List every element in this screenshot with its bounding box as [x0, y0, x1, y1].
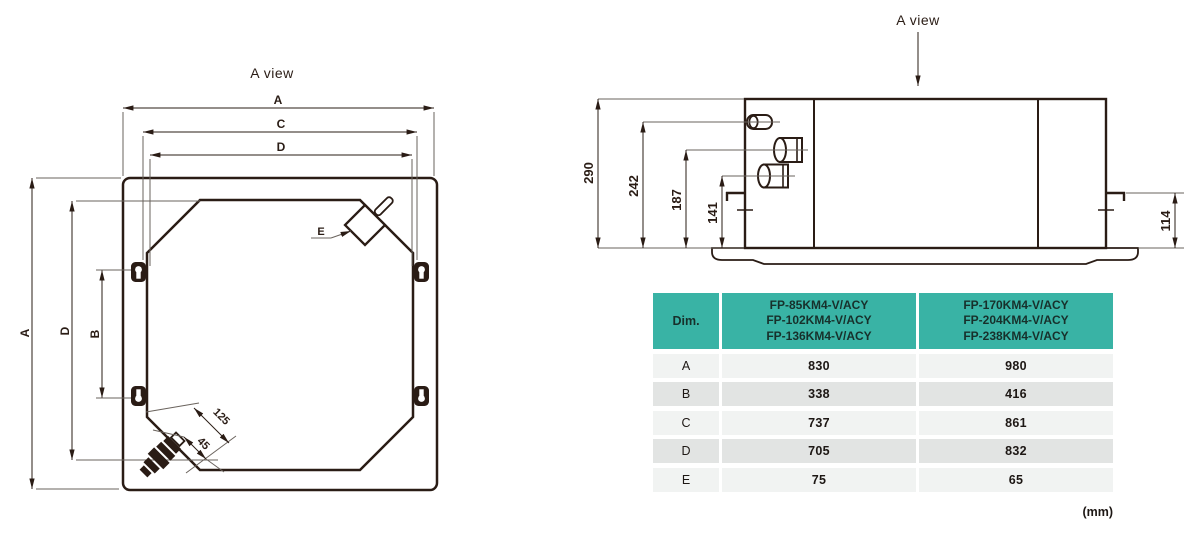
dim-e-label: E: [317, 226, 324, 238]
table-row: B 338 416: [653, 382, 1113, 406]
unit-body-octagon: [147, 200, 413, 470]
dim-114-label: 114: [1158, 210, 1173, 232]
dim-141-label: 141: [705, 202, 720, 224]
hanger-bracket: [414, 262, 429, 282]
dim-242-label: 242: [626, 175, 641, 197]
row-value: 830: [722, 354, 916, 378]
dim-a-vertical-label: A: [18, 328, 32, 337]
row-dim-letter: A: [653, 354, 719, 378]
unit-note: (mm): [1013, 505, 1113, 519]
table-row: D 705 832: [653, 439, 1113, 463]
hanger-hook-right: [1106, 192, 1125, 201]
row-value: 75: [722, 468, 916, 492]
row-value: 416: [919, 382, 1113, 406]
table-header-dim: Dim.: [653, 293, 719, 349]
dim-d-vertical-label: D: [58, 326, 72, 335]
dimensional-drawing-page: A view A C D A: [0, 0, 1200, 543]
unit-body-side: [745, 99, 1106, 248]
side-view-title: A view: [896, 12, 940, 28]
dim-b-label: B: [88, 329, 102, 338]
top-view-drawing: A view A C D A: [18, 65, 437, 490]
row-value: 980: [919, 354, 1113, 378]
row-value: 861: [919, 411, 1113, 435]
model-name: FP-238KM4-V/ACY: [963, 329, 1068, 345]
dim-a-label: A: [274, 93, 283, 107]
row-value: 338: [722, 382, 916, 406]
model-name: FP-170KM4-V/ACY: [963, 298, 1068, 314]
dim-187-label: 187: [669, 189, 684, 211]
row-value: 832: [919, 439, 1113, 463]
hanger-hook-left: [726, 192, 745, 201]
table-header-row: Dim. FP-85KM4-V/ACY FP-102KM4-V/ACY FP-1…: [653, 293, 1113, 349]
hanger-bracket: [414, 386, 429, 406]
dim-c-label: C: [277, 117, 286, 131]
row-dim-letter: D: [653, 439, 719, 463]
hanger-bracket: [131, 386, 146, 406]
dim-290-label: 290: [581, 162, 596, 184]
table-row: E 75 65: [653, 468, 1113, 492]
row-value: 65: [919, 468, 1113, 492]
table-header-models-1: FP-85KM4-V/ACY FP-102KM4-V/ACY FP-136KM4…: [722, 293, 916, 349]
side-view-drawing: A view: [581, 12, 1184, 264]
row-dim-letter: E: [653, 468, 719, 492]
row-dim-letter: B: [653, 382, 719, 406]
model-name: FP-204KM4-V/ACY: [963, 313, 1068, 329]
table-row: A 830 980: [653, 354, 1113, 378]
dimension-table: Dim. FP-85KM4-V/ACY FP-102KM4-V/ACY FP-1…: [653, 293, 1113, 492]
model-name: FP-85KM4-V/ACY: [770, 298, 869, 314]
table-row: C 737 861: [653, 411, 1113, 435]
model-name: FP-102KM4-V/ACY: [766, 313, 871, 329]
top-view-title: A view: [250, 65, 294, 81]
model-name: FP-136KM4-V/ACY: [766, 329, 871, 345]
dim-a-vertical: [32, 178, 121, 489]
hanger-bracket: [131, 262, 146, 282]
row-value: 705: [722, 439, 916, 463]
dim-d-label: D: [277, 140, 286, 154]
row-value: 737: [722, 411, 916, 435]
ceiling-panel: [712, 248, 1138, 264]
row-dim-letter: C: [653, 411, 719, 435]
table-header-models-2: FP-170KM4-V/ACY FP-204KM4-V/ACY FP-238KM…: [919, 293, 1113, 349]
